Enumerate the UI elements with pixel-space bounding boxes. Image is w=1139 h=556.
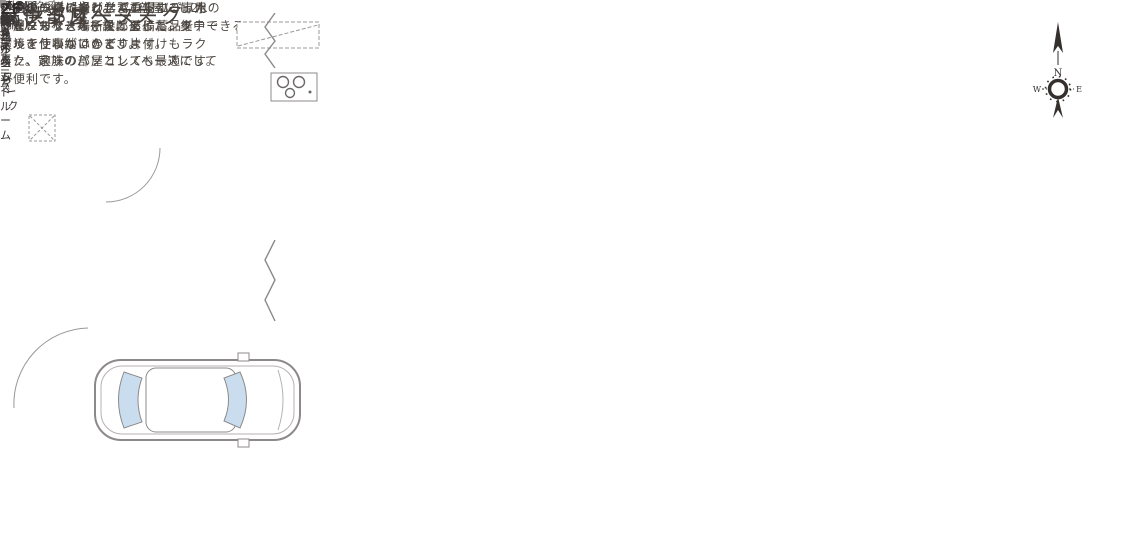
compass-icon: N W E — [1030, 20, 1086, 120]
floorplan-page: パントリー キッチン横に設けたパントリー。水 やビールなど場所をとる備蓄品を す… — [0, 0, 1139, 556]
floor2-label: 2F — [0, 0, 23, 18]
compass-e: E — [1076, 85, 1082, 94]
closet-south-bifold-door — [264, 240, 276, 321]
compass-w: W — [1033, 85, 1042, 94]
closet-north-bifold-door — [264, 13, 276, 68]
compass-n: N — [1054, 68, 1063, 79]
stove — [270, 72, 318, 102]
car — [92, 352, 304, 448]
upper-cabinet — [236, 21, 320, 49]
entrance-door-arc — [8, 318, 90, 412]
washer — [28, 114, 56, 142]
master-door-arc — [104, 146, 164, 206]
